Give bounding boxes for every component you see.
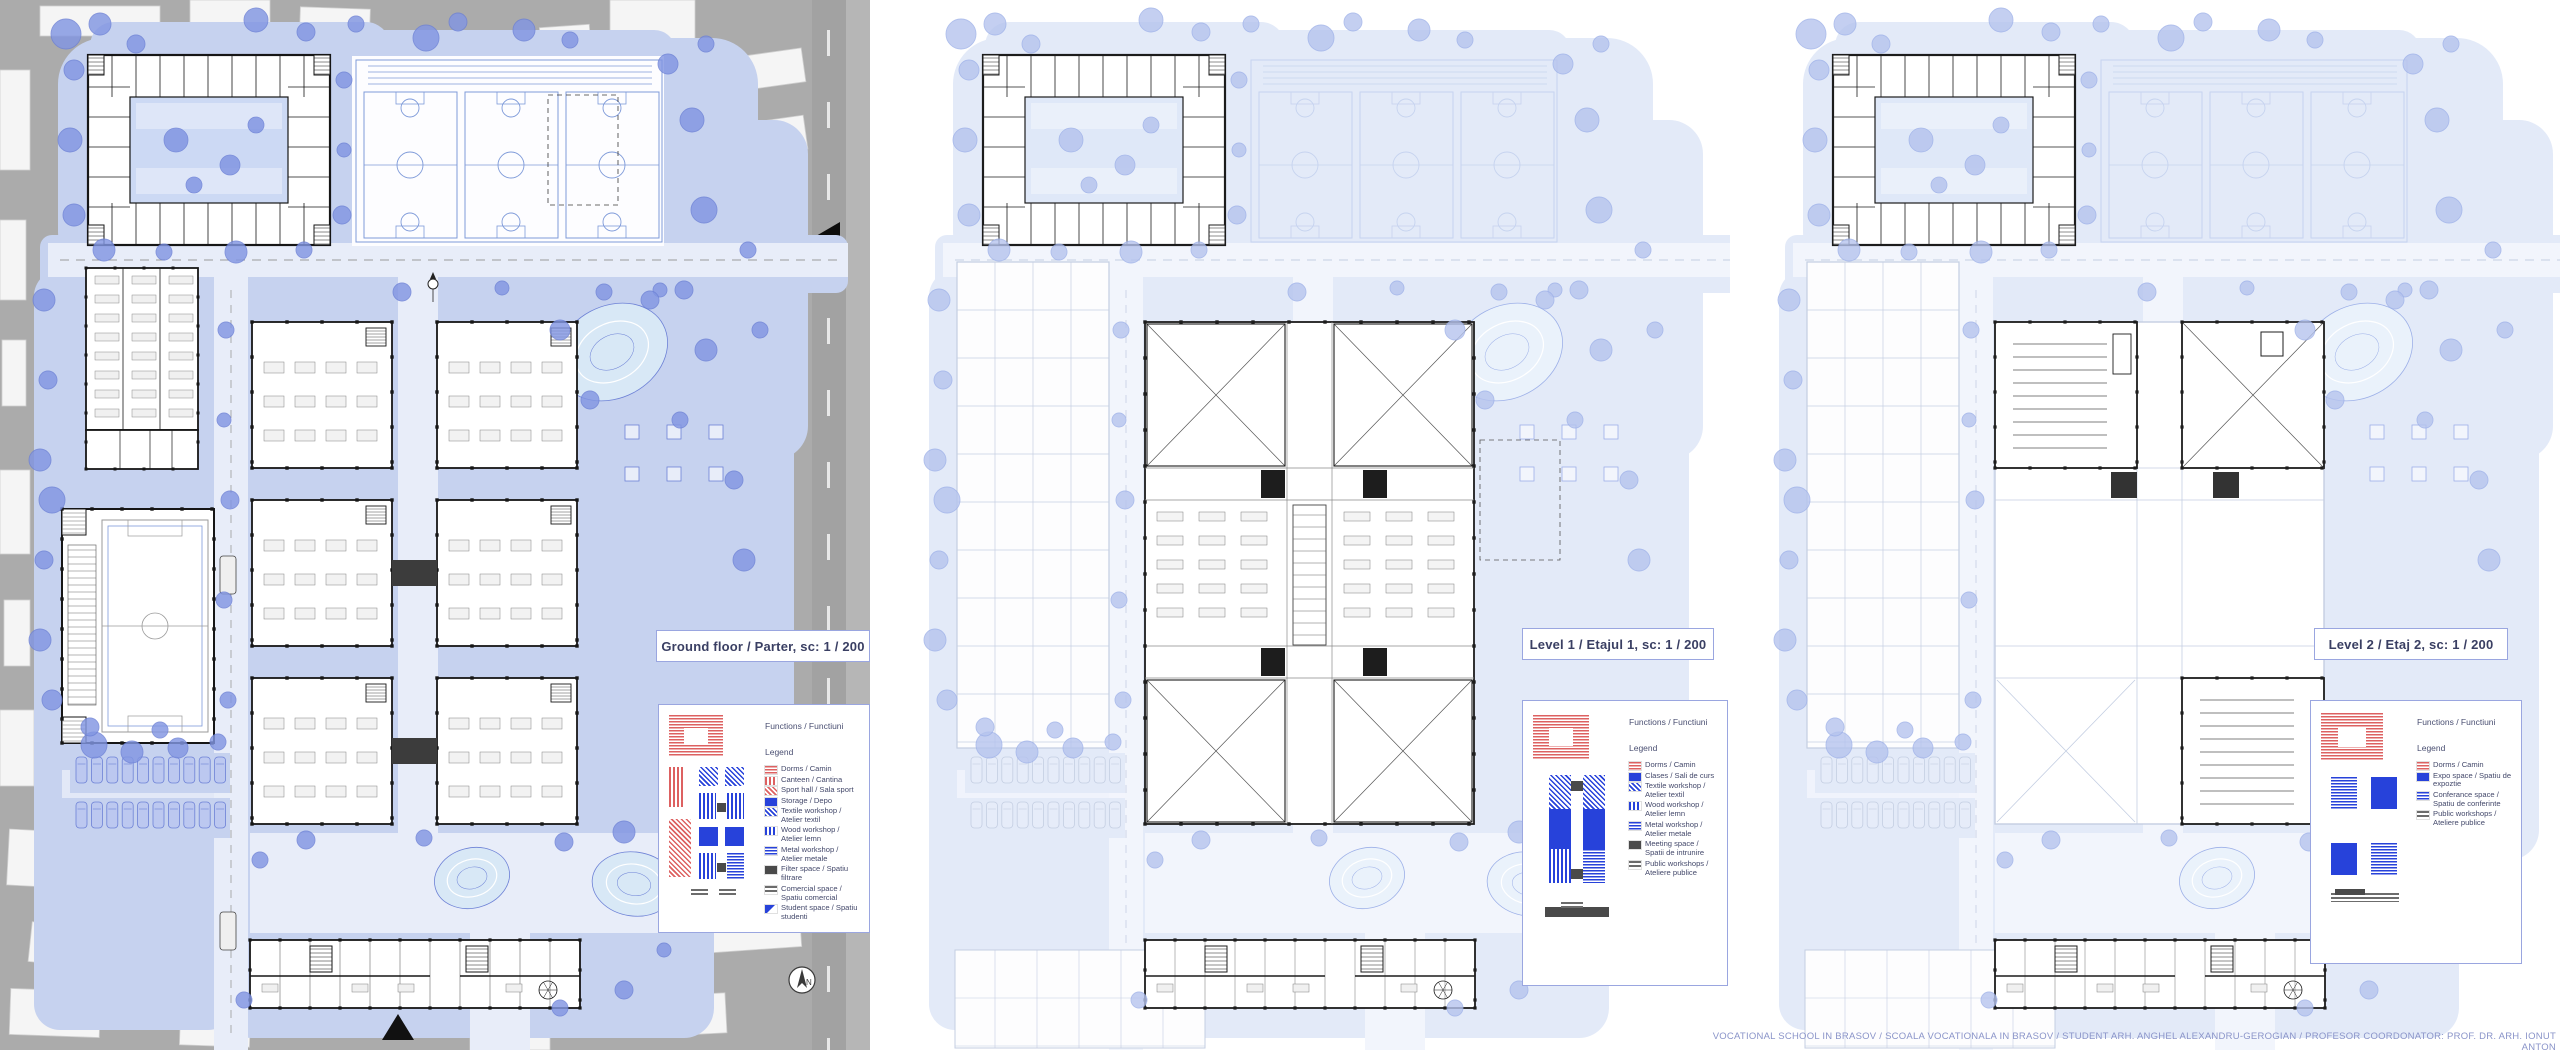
legend-header: Legend xyxy=(1629,743,1719,753)
legend-item-label: Storage / Depo xyxy=(781,797,832,806)
legend-header: Legend xyxy=(2417,743,2513,753)
functions-diagram-block xyxy=(1571,869,1583,879)
legend-item-label: Canteen / Cantina xyxy=(781,776,842,785)
legend-swatch-icon xyxy=(1629,762,1641,770)
legend-swatch-icon xyxy=(765,777,777,785)
functions-diagram-block xyxy=(1583,809,1605,849)
functions-diagram-block xyxy=(1533,715,1589,759)
functions-diagram-block xyxy=(2321,713,2383,761)
legend-item-label: Textile workshop / Atelier textil xyxy=(781,807,861,825)
legend-item: Sport hall / Sala sport xyxy=(765,786,861,795)
legend-swatch-icon xyxy=(2417,773,2429,781)
legend-swatch-icon xyxy=(765,886,777,894)
plan-title: Ground floor / Parter, sc: 1 / 200 xyxy=(656,630,870,662)
legend-item: Filter space / Spatiu filtrare xyxy=(765,865,861,883)
project-credit-line: VOCATIONAL SCHOOL IN BRASOV / SCOALA VOC… xyxy=(1700,1031,2556,1050)
legend-item: Textile workshop / Atelier textil xyxy=(1629,782,1719,800)
plan-title-label: Ground floor / Parter, sc: 1 / 200 xyxy=(661,639,864,654)
functions-diagram-block xyxy=(2371,843,2397,875)
north-arrow-icon: N xyxy=(789,967,815,993)
legend-item-label: Dorms / Camin xyxy=(2433,761,2484,770)
legend-swatch-icon xyxy=(765,905,777,913)
legend-item-label: Clases / Sali de curs xyxy=(1645,772,1714,781)
functions-diagram-block xyxy=(1549,775,1571,809)
legend-item: Public workshops / Ateliere publice xyxy=(1629,860,1719,878)
functions-diagram-block xyxy=(727,853,744,879)
legend-box: Functions / Functiuni Legend Dorms / Cam… xyxy=(658,704,870,933)
legend-item-label: Metal workshop / Atelier metale xyxy=(781,846,861,864)
legend-item: Metal workshop / Atelier metale xyxy=(765,846,861,864)
legend-swatch-icon xyxy=(765,787,777,795)
legend-swatch-icon xyxy=(765,766,777,774)
legend-item: Dorms / Camin xyxy=(2417,761,2513,770)
functions-diagram-block xyxy=(699,827,718,846)
legend-item-label: Filter space / Spatiu filtrare xyxy=(781,865,861,883)
functions-diagram-block xyxy=(691,889,708,897)
legend-swatch-icon xyxy=(1629,783,1641,791)
legend-header: Legend xyxy=(765,747,861,757)
functions-diagram-block xyxy=(2335,889,2365,895)
legend-swatch-icon xyxy=(765,798,777,806)
functions-diagram-block xyxy=(669,767,684,807)
legend-item-label: Student space / Spatiu studenti xyxy=(781,904,861,922)
functions-diagram-block xyxy=(1545,907,1609,917)
functions-diagram xyxy=(2321,711,2409,953)
legend-swatch-icon xyxy=(765,866,777,874)
legend-item-label: Expo space / Spatiu de expoztie xyxy=(2433,772,2513,790)
legend-swatch-icon xyxy=(2417,811,2429,819)
functions-diagram-block xyxy=(1561,902,1583,908)
functions-diagram-block xyxy=(1549,809,1571,849)
legend-item: Metal workshop / Atelier metale xyxy=(1629,821,1719,839)
legend-swatch-icon xyxy=(765,827,777,835)
legend-swatch-icon xyxy=(2417,762,2429,770)
legend-item-label: Metal workshop / Atelier metale xyxy=(1645,821,1719,839)
functions-diagram-block xyxy=(669,715,723,757)
legend-item: Dorms / Camin xyxy=(765,765,861,774)
legend-swatch-icon xyxy=(1629,802,1641,810)
legend-swatch-icon xyxy=(1629,822,1641,830)
functions-diagram-block xyxy=(725,767,744,786)
legend-item-label: Public workshops / Ateliere publice xyxy=(1645,860,1719,878)
presentation-board: N Ground floor / Parter, sc: 1 / 200 Fun… xyxy=(0,0,2560,1050)
panel-level-2: Level 2 / Etaj 2, sc: 1 / 200 Functions … xyxy=(1730,0,2560,1050)
legend-swatch-icon xyxy=(1629,861,1641,869)
legend-swatch-icon xyxy=(1629,841,1641,849)
functions-diagram-block xyxy=(1549,849,1571,883)
functions-diagram-block xyxy=(2331,843,2357,875)
legend-item: Clases / Sali de curs xyxy=(1629,772,1719,781)
legend-item: Comercial space / Spatiu comercial xyxy=(765,885,861,903)
legend-items: Dorms / CaminExpo space / Spatiu de expo… xyxy=(2417,761,2513,828)
legend-item-label: Conferance space / Spatiu de conferinte xyxy=(2433,791,2513,809)
legend-box: Functions / Functiuni Legend Dorms / Cam… xyxy=(1522,700,1728,986)
legend-swatch-icon xyxy=(1629,773,1641,781)
panel-level-1: Level 1 / Etajul 1, sc: 1 / 200 Function… xyxy=(870,0,1730,1050)
plan-title: Level 1 / Etajul 1, sc: 1 / 200 xyxy=(1522,628,1714,660)
functions-diagram-block xyxy=(669,819,691,877)
legend-items: Dorms / CaminCanteen / CantinaSport hall… xyxy=(765,765,861,922)
plan-title-label: Level 2 / Etaj 2, sc: 1 / 200 xyxy=(2329,637,2494,652)
legend-swatch-icon xyxy=(2417,792,2429,800)
functions-diagram-block xyxy=(719,889,736,897)
functions-diagram-block xyxy=(1583,775,1605,809)
functions-diagram-block xyxy=(699,767,718,786)
legend-item: Wood workshop / Atelier lemn xyxy=(765,826,861,844)
functions-diagram-block xyxy=(717,863,726,872)
legend-item-label: Wood workshop / Atelier lemn xyxy=(781,826,861,844)
functions-diagram-block xyxy=(699,793,716,819)
legend-swatch-icon xyxy=(765,847,777,855)
panel-ground-floor: N Ground floor / Parter, sc: 1 / 200 Fun… xyxy=(0,0,870,1050)
functions-diagram-block xyxy=(727,793,744,819)
legend-item: Textile workshop / Atelier textil xyxy=(765,807,861,825)
functions-diagram-block xyxy=(1571,781,1583,791)
functions-diagram xyxy=(669,715,757,922)
functions-diagram-block xyxy=(2331,777,2357,809)
functions-diagram-block xyxy=(725,827,744,846)
plan-title-label: Level 1 / Etajul 1, sc: 1 / 200 xyxy=(1530,637,1707,652)
legend-item: Canteen / Cantina xyxy=(765,776,861,785)
legend-item-label: Textile workshop / Atelier textil xyxy=(1645,782,1719,800)
legend-item: Expo space / Spatiu de expoztie xyxy=(2417,772,2513,790)
functions-diagram-block xyxy=(699,853,716,879)
legend-item-label: Sport hall / Sala sport xyxy=(781,786,854,795)
legend-item: Dorms / Camin xyxy=(1629,761,1719,770)
legend-item-label: Comercial space / Spatiu comercial xyxy=(781,885,861,903)
legend-box: Functions / Functiuni Legend Dorms / Cam… xyxy=(2310,700,2522,964)
legend-item: Meeting space / Spatii de intrunire xyxy=(1629,840,1719,858)
functions-diagram-block xyxy=(2371,777,2397,809)
legend-item-label: Wood workshop / Atelier lemn xyxy=(1645,801,1719,819)
legend-item: Wood workshop / Atelier lemn xyxy=(1629,801,1719,819)
functions-diagram xyxy=(1533,711,1621,975)
functions-header: Functions / Functiuni xyxy=(2417,717,2513,727)
legend-item: Student space / Spatiu studenti xyxy=(765,904,861,922)
legend-item-label: Meeting space / Spatii de intrunire xyxy=(1645,840,1719,858)
functions-header: Functions / Functiuni xyxy=(1629,717,1719,727)
legend-item: Public workshops / Ateliere publice xyxy=(2417,810,2513,828)
legend-item: Conferance space / Spatiu de conferinte xyxy=(2417,791,2513,809)
legend-item: Storage / Depo xyxy=(765,797,861,806)
functions-diagram-block xyxy=(1583,849,1605,883)
legend-swatch-icon xyxy=(765,808,777,816)
legend-item-label: Public workshops / Ateliere publice xyxy=(2433,810,2513,828)
functions-diagram-block xyxy=(717,803,726,812)
plan-title: Level 2 / Etaj 2, sc: 1 / 200 xyxy=(2314,628,2508,660)
legend-items: Dorms / CaminClases / Sali de cursTextil… xyxy=(1629,761,1719,878)
legend-item-label: Dorms / Camin xyxy=(781,765,832,774)
svg-text:N: N xyxy=(806,978,812,987)
functions-header: Functions / Functiuni xyxy=(765,721,861,731)
legend-item-label: Dorms / Camin xyxy=(1645,761,1696,770)
